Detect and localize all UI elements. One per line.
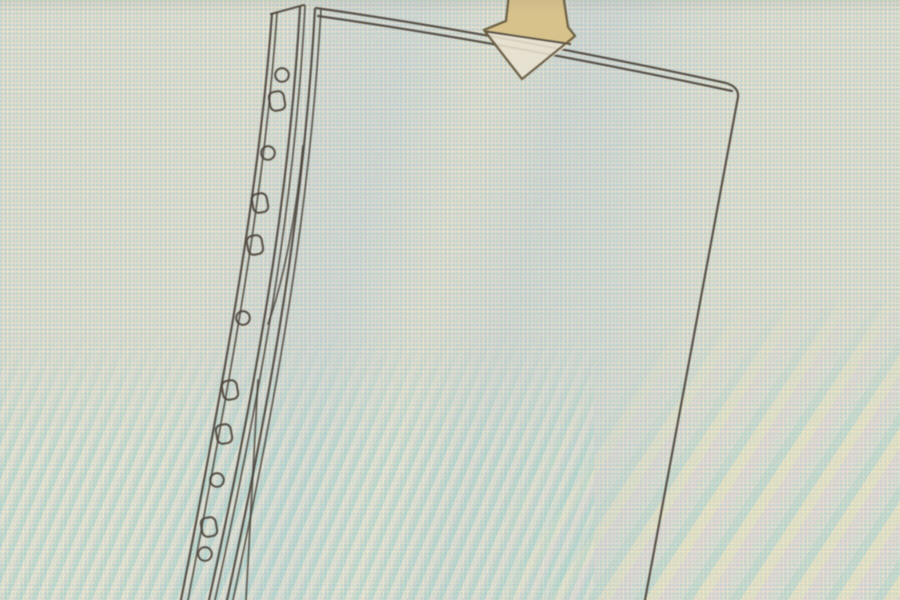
pocket-insertion-figure	[0, 0, 900, 600]
pocket-left-fold-outer-line	[227, 9, 315, 600]
screen-photo	[0, 0, 900, 600]
punch-hole	[246, 234, 264, 255]
punch-hole	[236, 311, 250, 325]
pocket-body	[316, 8, 738, 600]
strip-right-edge-outer-line	[209, 7, 300, 600]
pocket-top-edge-outer-line	[316, 8, 738, 600]
strip-left-edge-outer-line	[181, 14, 272, 600]
punch-hole	[198, 547, 212, 561]
punch-hole	[221, 379, 239, 400]
insert-arrow	[484, 0, 575, 79]
punch-hole	[215, 423, 233, 444]
punch-hole	[210, 473, 224, 487]
punch-hole	[275, 68, 289, 82]
punch-hole	[268, 90, 286, 111]
filing-strip	[181, 5, 321, 600]
pocket-diagram-svg	[0, 0, 900, 600]
punch-holes	[198, 68, 289, 561]
punch-hole	[251, 192, 269, 213]
